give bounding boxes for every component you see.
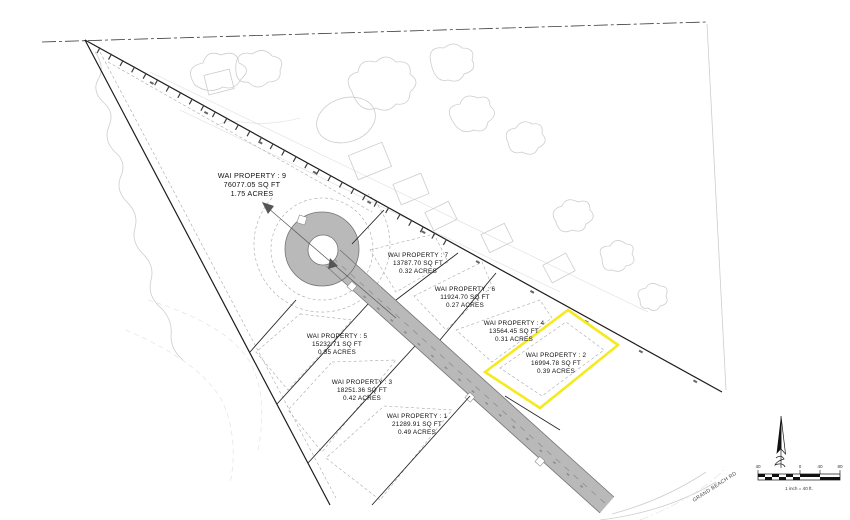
- lot7-name: WAI PROPERTY : 7: [388, 252, 449, 259]
- lot-label-9: WAI PROPERTY : 9 76077.05 SQ FT 1.75 ACR…: [218, 171, 287, 198]
- lot4-acres: 0.31 ACRES: [495, 336, 533, 343]
- lot-label-6: WAI PROPERTY : 6 11924.70 SQ FT 0.27 ACR…: [435, 286, 496, 309]
- lot6-sqft: 11924.70 SQ FT: [440, 294, 490, 301]
- grand-beach-rd-label: GRAND BEACH RD: [692, 471, 738, 504]
- lot6-acres: 0.27 ACRES: [446, 302, 484, 309]
- lot-label-1: WAI PROPERTY : 1 21289.91 SQ FT 0.49 ACR…: [387, 413, 448, 436]
- lot9-sqft: 76077.05 SQ FT: [224, 180, 281, 189]
- lot9-acres: 1.75 ACRES: [231, 189, 274, 198]
- lot3-name: WAI PROPERTY : 3: [332, 379, 393, 386]
- lot9-name: WAI PROPERTY : 9: [218, 171, 287, 180]
- lot5-sqft: 15232.71 SQ FT: [312, 341, 362, 348]
- scale-tick-3: 80: [837, 464, 843, 469]
- lot4-name: WAI PROPERTY : 4: [484, 320, 545, 327]
- lot4-sqft: 13564.45 SQ FT: [489, 328, 539, 335]
- lot7-sqft: 13787.70 SQ FT: [393, 260, 443, 267]
- lot2-sqft: 16994.78 SQ FT: [531, 360, 581, 367]
- boundary-layer: [42, 22, 722, 505]
- culdesac-island: [308, 235, 338, 265]
- scale-tick-1: 0: [799, 464, 802, 469]
- lot3-sqft: 18251.36 SQ FT: [337, 387, 387, 394]
- row-centerline: [42, 22, 706, 42]
- lot5-acres: 0.35 ACRES: [318, 349, 356, 356]
- scale-bar: 40 0 40 80 1 inch = 40 ft.: [755, 464, 843, 491]
- lot6-name: WAI PROPERTY : 6: [435, 286, 496, 293]
- north-arrow-icon: [775, 416, 786, 468]
- scale-caption: 1 inch = 40 ft.: [785, 486, 813, 491]
- lot1-sqft: 21289.91 SQ FT: [392, 421, 442, 428]
- lot7-acres: 0.32 ACRES: [399, 268, 437, 275]
- lot-label-4: WAI PROPERTY : 4 13564.45 SQ FT 0.31 ACR…: [484, 320, 545, 343]
- scale-tick-0: 40: [755, 464, 761, 469]
- lot2-name: WAI PROPERTY : 2: [526, 352, 587, 359]
- lot5-name: WAI PROPERTY : 5: [307, 333, 368, 340]
- lot3-acres: 0.42 ACRES: [343, 395, 381, 402]
- lot1-acres: 0.49 ACRES: [398, 429, 436, 436]
- site-plan-svg: WAI PROPERTY : 9 76077.05 SQ FT 1.75 ACR…: [0, 0, 850, 520]
- lot-label-7: WAI PROPERTY : 7 13787.70 SQ FT 0.32 ACR…: [388, 252, 449, 275]
- lot-label-2: WAI PROPERTY : 2 16994.78 SQ FT 0.39 ACR…: [526, 352, 587, 375]
- lot1-name: WAI PROPERTY : 1: [387, 413, 448, 420]
- scale-tick-2: 40: [817, 464, 823, 469]
- lot2-acres: 0.39 ACRES: [537, 368, 575, 375]
- site-plan-canvas: WAI PROPERTY : 9 76077.05 SQ FT 1.75 ACR…: [0, 0, 850, 520]
- lot-label-5: WAI PROPERTY : 5 15232.71 SQ FT 0.35 ACR…: [307, 333, 368, 356]
- lot-label-3: WAI PROPERTY : 3 18251.36 SQ FT 0.42 ACR…: [332, 379, 393, 402]
